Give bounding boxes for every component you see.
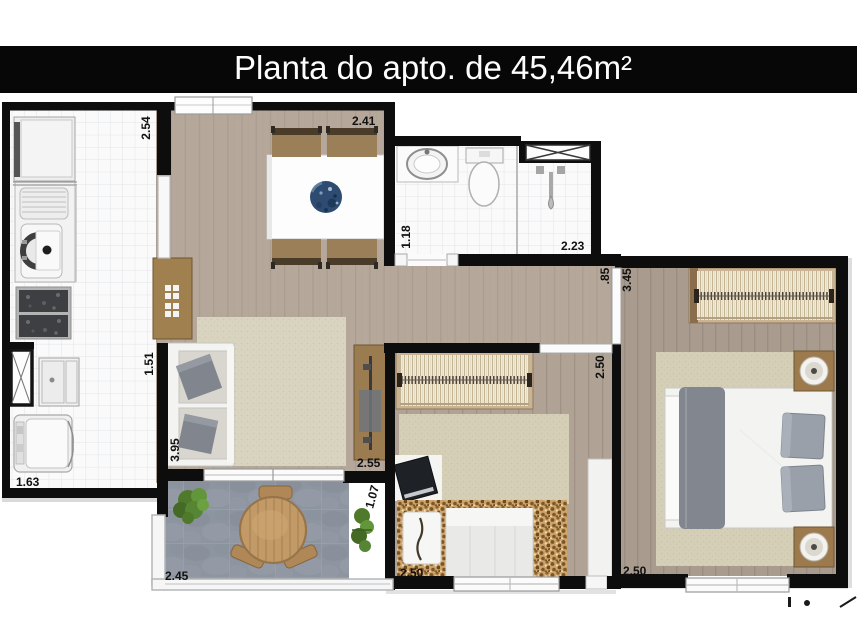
svg-text:2.54: 2.54: [139, 116, 153, 140]
svg-text:Planta do apto. de 45,46m²: Planta do apto. de 45,46m²: [234, 49, 632, 86]
svg-text:1.51: 1.51: [142, 352, 156, 376]
svg-text:2.45: 2.45: [165, 569, 189, 583]
svg-text:.85: .85: [598, 267, 612, 284]
svg-text:3.45: 3.45: [620, 268, 634, 292]
svg-text:1.18: 1.18: [399, 225, 413, 249]
svg-text:2.23: 2.23: [561, 239, 585, 253]
svg-text:2.50: 2.50: [593, 355, 607, 379]
svg-text:3.95: 3.95: [168, 438, 182, 462]
svg-text:2.41: 2.41: [352, 114, 376, 128]
svg-text:2.55: 2.55: [357, 456, 381, 470]
svg-text:2.50: 2.50: [400, 566, 424, 580]
svg-text:1.63: 1.63: [16, 475, 40, 489]
svg-text:2.50: 2.50: [623, 564, 647, 578]
